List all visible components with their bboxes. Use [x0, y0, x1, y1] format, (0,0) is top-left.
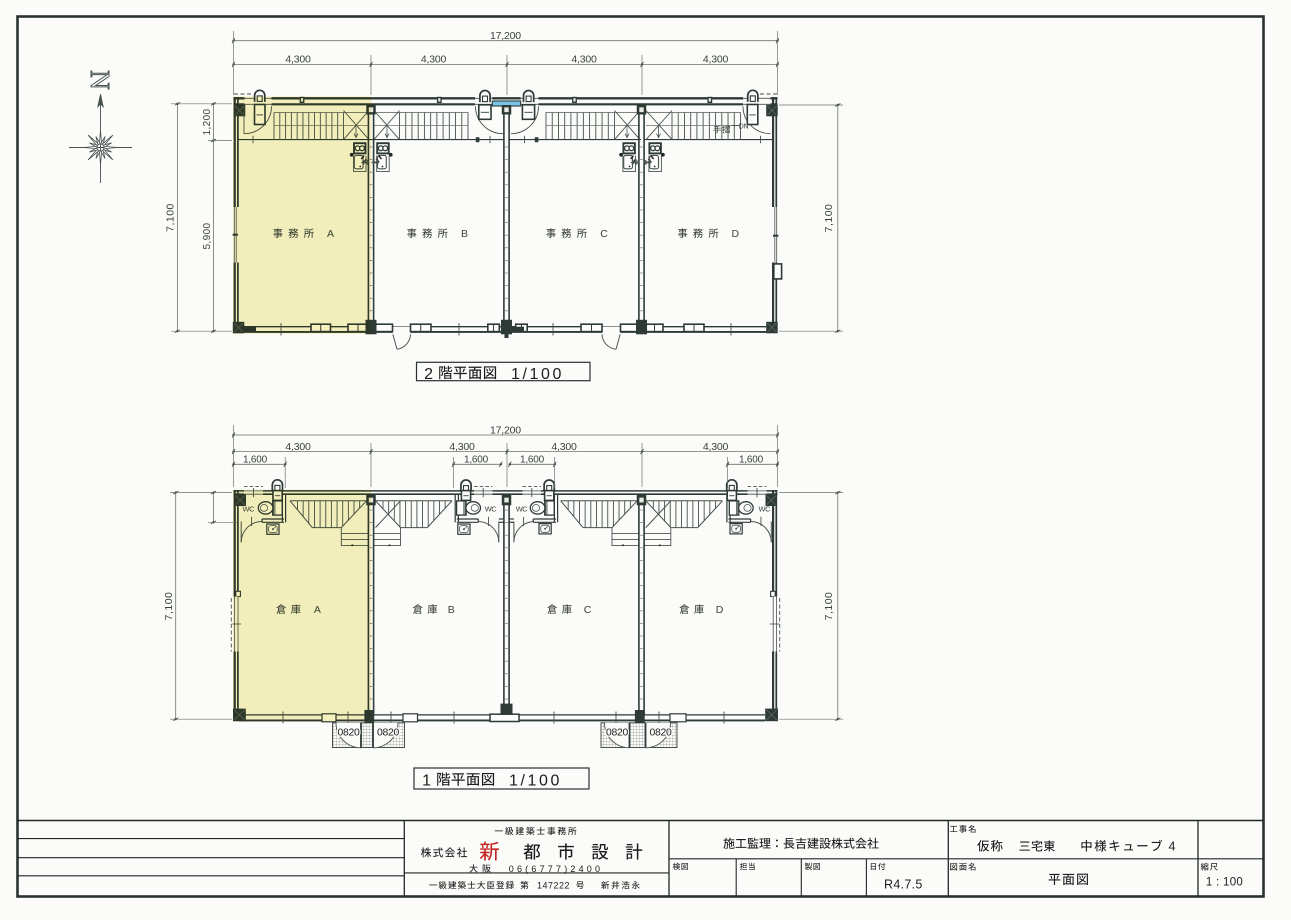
svg-text:4,300: 4,300	[551, 441, 577, 453]
svg-text:7,100: 7,100	[823, 204, 835, 233]
svg-text:D: D	[716, 604, 724, 616]
svg-text:WC: WC	[516, 505, 529, 514]
svg-text:1 : 100: 1 : 100	[1206, 876, 1243, 888]
svg-text:B: B	[461, 228, 468, 240]
svg-text:0820: 0820	[606, 727, 628, 738]
svg-text:1/100: 1/100	[509, 773, 562, 790]
svg-text:4,300: 4,300	[449, 441, 475, 453]
svg-text:2: 2	[424, 366, 433, 383]
svg-text:7,100: 7,100	[165, 203, 177, 232]
svg-text:147222: 147222	[537, 880, 570, 890]
svg-text:4: 4	[1169, 840, 1176, 854]
svg-text:0820: 0820	[650, 727, 672, 738]
svg-text:1,600: 1,600	[464, 455, 489, 466]
svg-text:B: B	[448, 604, 455, 616]
svg-text:DN: DN	[739, 123, 749, 130]
svg-text:4,300: 4,300	[703, 441, 729, 453]
svg-text:1,600: 1,600	[243, 455, 268, 466]
svg-text:WC: WC	[485, 505, 498, 514]
svg-text:17,200: 17,200	[490, 424, 521, 436]
svg-text:N: N	[85, 70, 115, 90]
svg-text:4,300: 4,300	[421, 54, 447, 66]
svg-text:0820: 0820	[338, 727, 360, 738]
svg-text:1: 1	[422, 773, 431, 790]
svg-text:7,100: 7,100	[163, 592, 175, 621]
svg-text:0820: 0820	[377, 727, 399, 738]
svg-text:06(6777)2400: 06(6777)2400	[509, 864, 603, 874]
svg-text:R4.7.5: R4.7.5	[884, 877, 923, 891]
svg-text:4,300: 4,300	[703, 54, 729, 66]
svg-text:1/100: 1/100	[511, 366, 564, 383]
svg-text:D: D	[732, 228, 740, 240]
svg-text:1,600: 1,600	[520, 455, 545, 466]
svg-text:7,100: 7,100	[823, 592, 835, 621]
svg-text:4,300: 4,300	[285, 441, 311, 453]
svg-text:5,900: 5,900	[202, 222, 213, 249]
svg-text:C: C	[600, 228, 608, 240]
svg-text:C: C	[584, 604, 592, 616]
svg-text:4,300: 4,300	[285, 54, 311, 66]
svg-text:17,200: 17,200	[490, 30, 521, 42]
svg-text:1,200: 1,200	[202, 108, 213, 135]
svg-text:1,600: 1,600	[739, 455, 764, 466]
svg-text:4,300: 4,300	[571, 54, 597, 66]
